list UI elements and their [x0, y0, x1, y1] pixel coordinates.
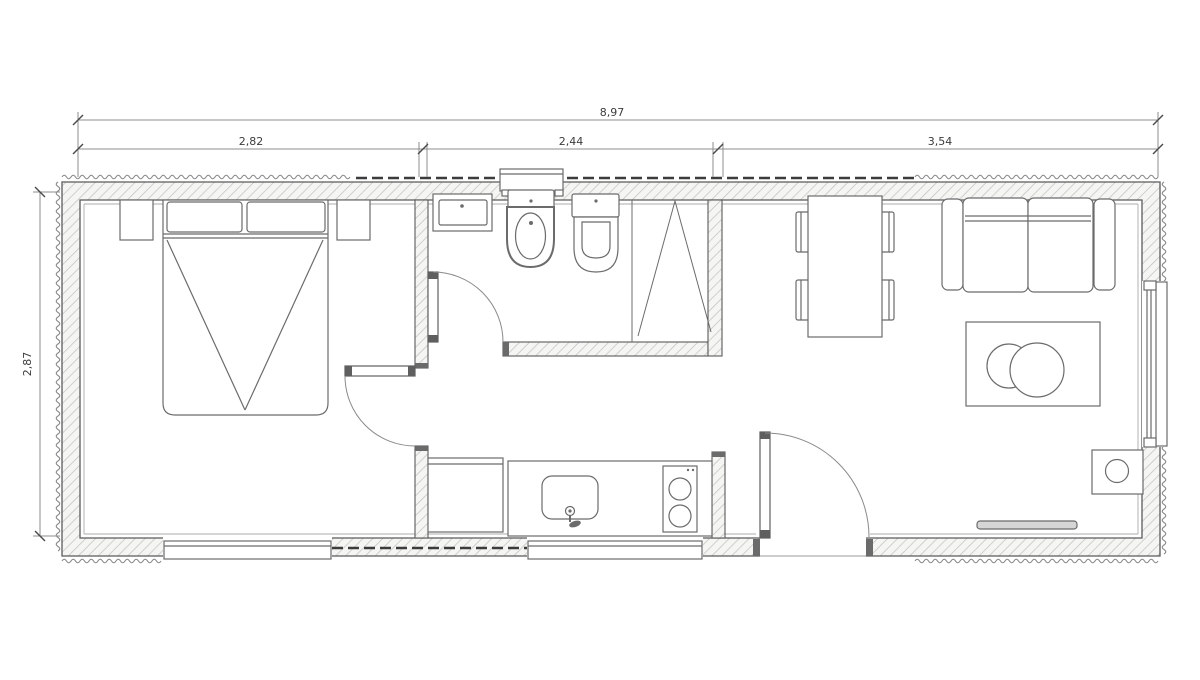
bedroom-furniture	[120, 200, 370, 415]
shower-folding-door	[632, 200, 711, 342]
corrugation-bottom-right	[915, 559, 1158, 563]
two-burner-cooktop	[663, 466, 697, 532]
bidet	[507, 190, 554, 267]
kitchen-right-stub-wall	[712, 452, 725, 538]
water-heater	[1092, 450, 1143, 494]
dim-height-label: 2,87	[21, 352, 34, 377]
burner-1	[669, 478, 691, 500]
dim-seg2-label: 2,44	[559, 135, 584, 148]
living-furniture	[796, 196, 1143, 529]
kitchen-fixtures	[428, 458, 712, 536]
burner-2	[669, 505, 691, 527]
bedroom-wall-upper	[415, 200, 428, 368]
corrugation-left	[56, 182, 60, 551]
corrugation-bottom-left	[62, 559, 161, 563]
corrugation-right-upper	[1162, 182, 1166, 281]
floor-plan-page: 8,97 2,82 2,44 3,54 2,87	[0, 0, 1200, 680]
corrugation-top-left	[62, 175, 350, 179]
floor-plan-svg: 8,97 2,82 2,44 3,54 2,87	[0, 0, 1200, 680]
window-bottom-bedroom	[163, 536, 332, 560]
window-right	[1142, 281, 1168, 447]
window-bottom-kitchen	[527, 536, 703, 560]
sofa-cushion-right	[1028, 198, 1093, 292]
bedroom-wall-lower-stub	[415, 446, 428, 538]
sofa-cushion-left	[963, 198, 1028, 292]
double-bed	[163, 200, 328, 415]
corrugation-right-lower	[1162, 446, 1166, 554]
fridge-cabinet	[428, 458, 503, 532]
pillow-left	[167, 202, 242, 232]
sofa-armrest-left	[942, 199, 963, 290]
bathroom-fixtures	[433, 190, 711, 342]
dim-overall-label: 8,97	[600, 106, 625, 119]
toilet	[572, 194, 619, 272]
bedroom-door	[345, 366, 415, 446]
dim-seg3-label: 3,54	[928, 135, 953, 148]
wall-shelf	[977, 521, 1077, 529]
wash-basin	[433, 194, 492, 231]
dim-seg1-label: 2,82	[239, 135, 264, 148]
pillow-right	[247, 202, 325, 232]
two-seat-sofa	[942, 198, 1115, 292]
corrugation-top-right	[915, 175, 1158, 179]
decor-circle-large	[1010, 343, 1064, 397]
bathroom-door	[428, 272, 503, 342]
bathroom-right-wall	[708, 200, 722, 356]
bathroom-bottom-wall	[503, 342, 708, 356]
entry-door	[760, 432, 869, 538]
nightstand-right	[337, 200, 370, 240]
entry-door-opening	[760, 537, 866, 558]
wall-end-caps	[415, 342, 725, 457]
sofa-armrest-right	[1094, 199, 1115, 290]
nightstand-left	[120, 200, 153, 240]
dining-table	[808, 196, 882, 337]
coffee-table	[966, 322, 1100, 406]
